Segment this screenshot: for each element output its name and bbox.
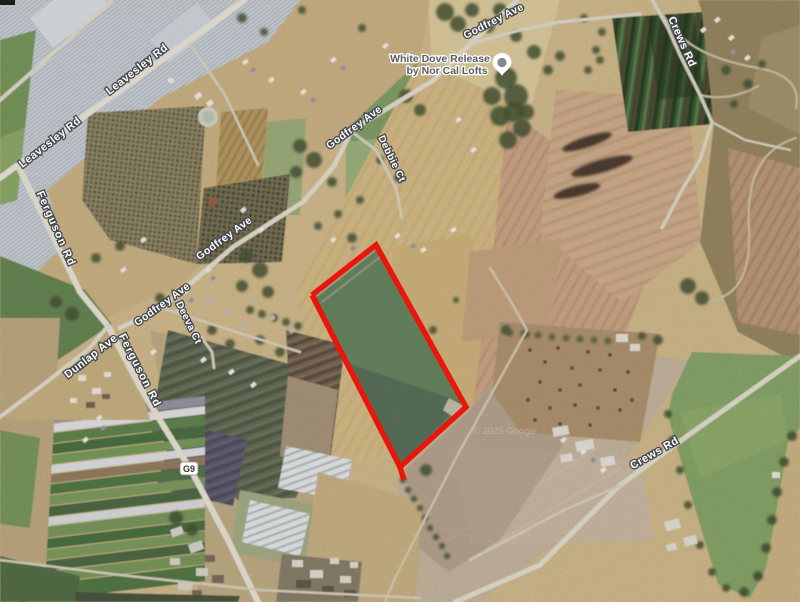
svg-text:© 2025 Google: © 2025 Google — [473, 426, 537, 437]
svg-text:G9: G9 — [183, 464, 195, 474]
svg-text:by Nor Cal Lofts: by Nor Cal Lofts — [406, 65, 487, 77]
svg-text:White Dove Release: White Dove Release — [390, 53, 490, 65]
